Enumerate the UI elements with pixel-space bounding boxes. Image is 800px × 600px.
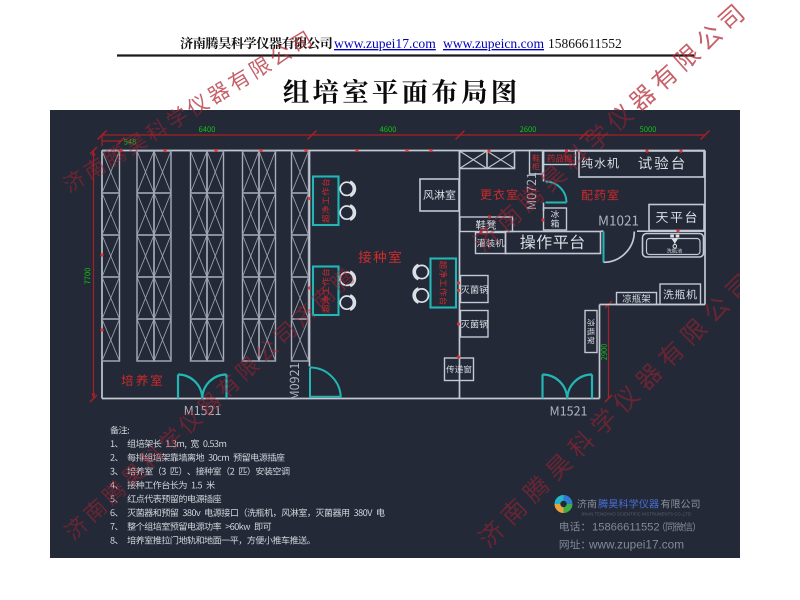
svg-text:www.zupeicn.com: www.zupeicn.com — [443, 36, 544, 51]
svg-text:JINAN TENGHAO SCIENTIFIC INSTR: JINAN TENGHAO SCIENTIFIC INSTRUMENTS CO.… — [581, 512, 691, 517]
svg-text:15866611552: 15866611552 — [592, 522, 660, 534]
svg-text:www.zupei17.com: www.zupei17.com — [588, 538, 684, 552]
svg-text:www.zupei17.com: www.zupei17.com — [334, 36, 436, 51]
svg-text:15866611552: 15866611552 — [548, 36, 622, 51]
